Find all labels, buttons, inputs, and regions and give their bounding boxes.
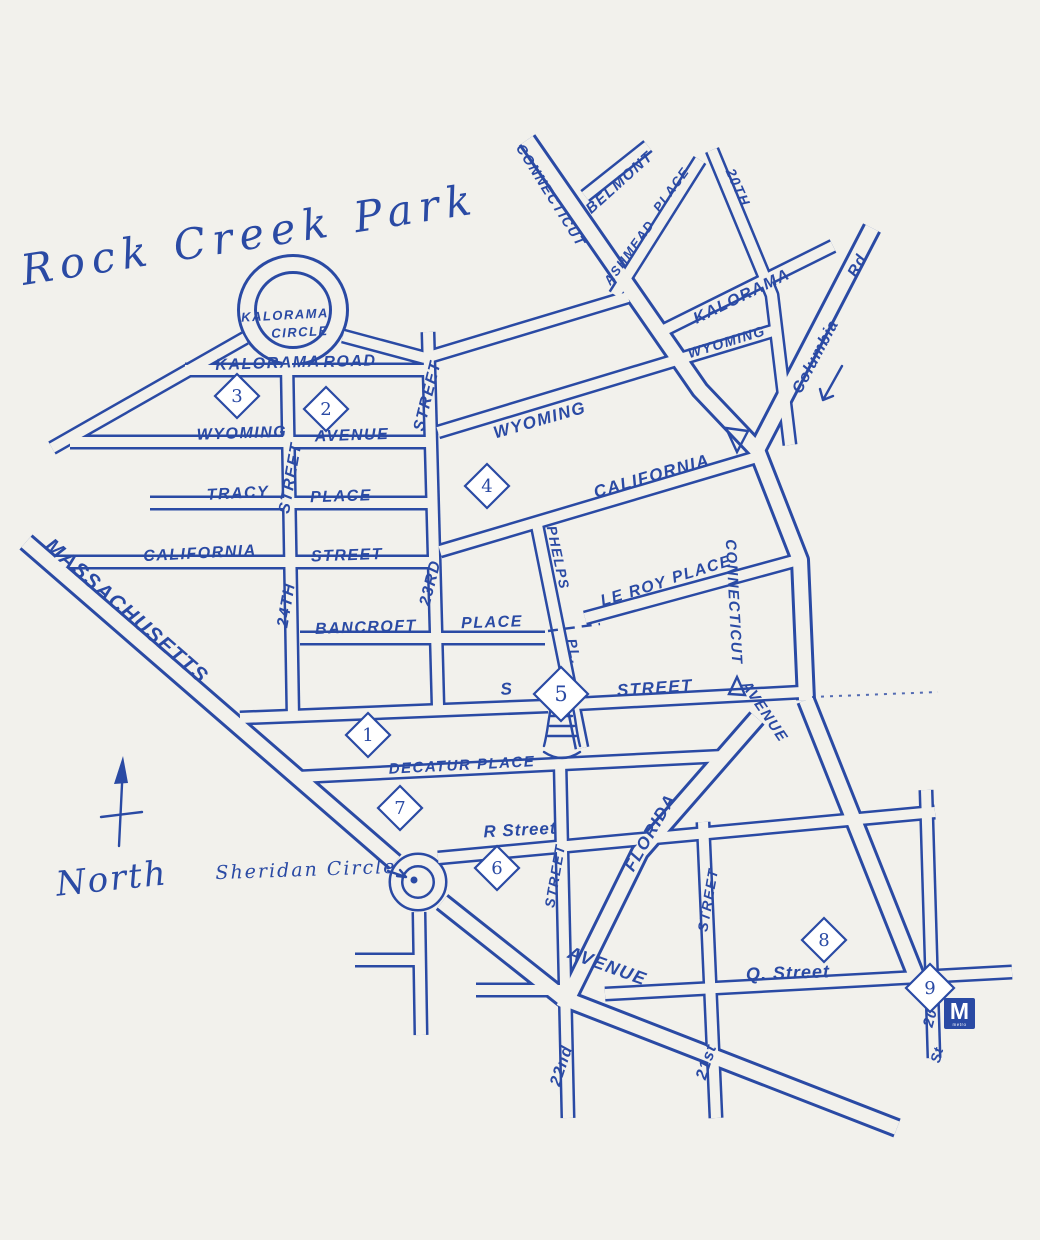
marker-number: 3 (231, 386, 242, 407)
marker-number: 1 (362, 725, 373, 746)
marker-number: 7 (394, 798, 405, 819)
road-sheridan-south-stub (419, 912, 421, 1035)
label-california-st-2: Street (311, 546, 384, 566)
map-canvas: Rock Creek ParkKaloramaCircleKaloramaRoa… (0, 0, 1040, 1240)
label-bancroft-2: Place (461, 613, 523, 632)
marker-number: 2 (320, 399, 331, 420)
marker-number: 9 (924, 978, 935, 999)
label-kalorama-road-2: Road (323, 352, 377, 371)
label-tracy-place-1: Tracy (206, 484, 269, 504)
metro-caption: metro (952, 1022, 966, 1027)
label-r-street: R Street (483, 819, 557, 842)
marker-number: 6 (491, 858, 502, 879)
label-wyoming-ave-w-1: Wyoming (196, 424, 287, 444)
sheridan-statue-dot (411, 877, 418, 884)
label-q-street: Q. Street (746, 961, 831, 984)
scanned-map-page: Rock Creek ParkKaloramaCircleKaloramaRoa… (0, 0, 1040, 1240)
metro-letter: M (950, 998, 969, 1024)
label-s-street-1: S (500, 679, 514, 699)
label-tracy-place-2: Place (310, 487, 372, 506)
road-24th-street (287, 362, 293, 718)
label-bancroft-1: Bancroft (315, 617, 417, 638)
label-kalorama-circle-line2: Circle (271, 323, 329, 341)
marker-number: 5 (554, 682, 567, 706)
marker-number: 4 (481, 476, 492, 497)
marker-number: 8 (818, 930, 829, 951)
metro-station-logo: M metro (944, 998, 975, 1029)
